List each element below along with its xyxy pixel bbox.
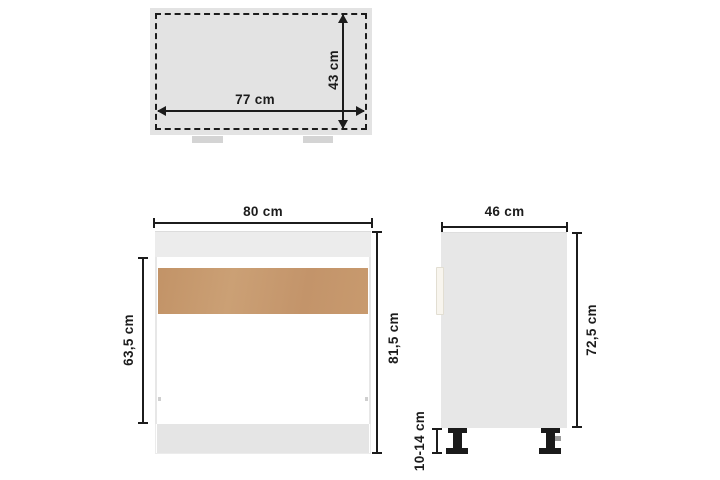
front-total-height-dim bbox=[376, 231, 378, 454]
side-body-height-dim bbox=[576, 232, 578, 428]
leg-height-dim bbox=[436, 428, 438, 454]
side-view-depth-dim bbox=[441, 226, 568, 228]
side-view-panel bbox=[441, 232, 567, 428]
front-view-cabinet bbox=[155, 231, 371, 454]
front-view-width-label: 80 cm bbox=[155, 204, 371, 220]
side-view-depth-label: 46 cm bbox=[441, 204, 568, 220]
adjustable-leg-back-stem bbox=[546, 433, 555, 449]
top-view-width-arrow bbox=[158, 110, 364, 112]
front-drawer-panel-wood bbox=[158, 268, 368, 314]
front-left-edge bbox=[155, 257, 157, 424]
front-total-height-label: 81,5 cm bbox=[386, 298, 402, 378]
front-top-rail bbox=[155, 231, 371, 257]
front-carcass-height-dim bbox=[142, 257, 144, 424]
front-view-width-dim bbox=[153, 222, 373, 224]
adjustable-leg-front-foot bbox=[446, 448, 468, 454]
side-body-height-label: 72,5 cm bbox=[584, 290, 600, 370]
adjustable-leg-back-foot bbox=[539, 448, 561, 454]
top-view-mount-tab-right bbox=[303, 136, 333, 143]
leg-adjuster-knob bbox=[555, 436, 561, 441]
front-carcass-height-label: 63,5 cm bbox=[121, 300, 137, 380]
top-view-depth-label: 43 cm bbox=[326, 30, 342, 110]
top-view-panel: 77 cm 43 cm bbox=[150, 8, 372, 135]
leg-height-label: 10-14 cm bbox=[412, 396, 428, 480]
top-view-depth-arrow bbox=[342, 15, 344, 128]
front-plinth bbox=[157, 424, 369, 453]
front-hinge-mark-right bbox=[365, 397, 368, 401]
side-door-front-edge bbox=[436, 267, 444, 315]
front-hinge-mark-left bbox=[158, 397, 161, 401]
front-right-edge bbox=[369, 257, 371, 424]
top-view-mount-tab-left bbox=[192, 136, 223, 143]
adjustable-leg-front-stem bbox=[453, 433, 462, 449]
dimension-diagram: 77 cm 43 cm 80 cm 63,5 cm 81,5 cm 46 cm … bbox=[0, 0, 720, 480]
